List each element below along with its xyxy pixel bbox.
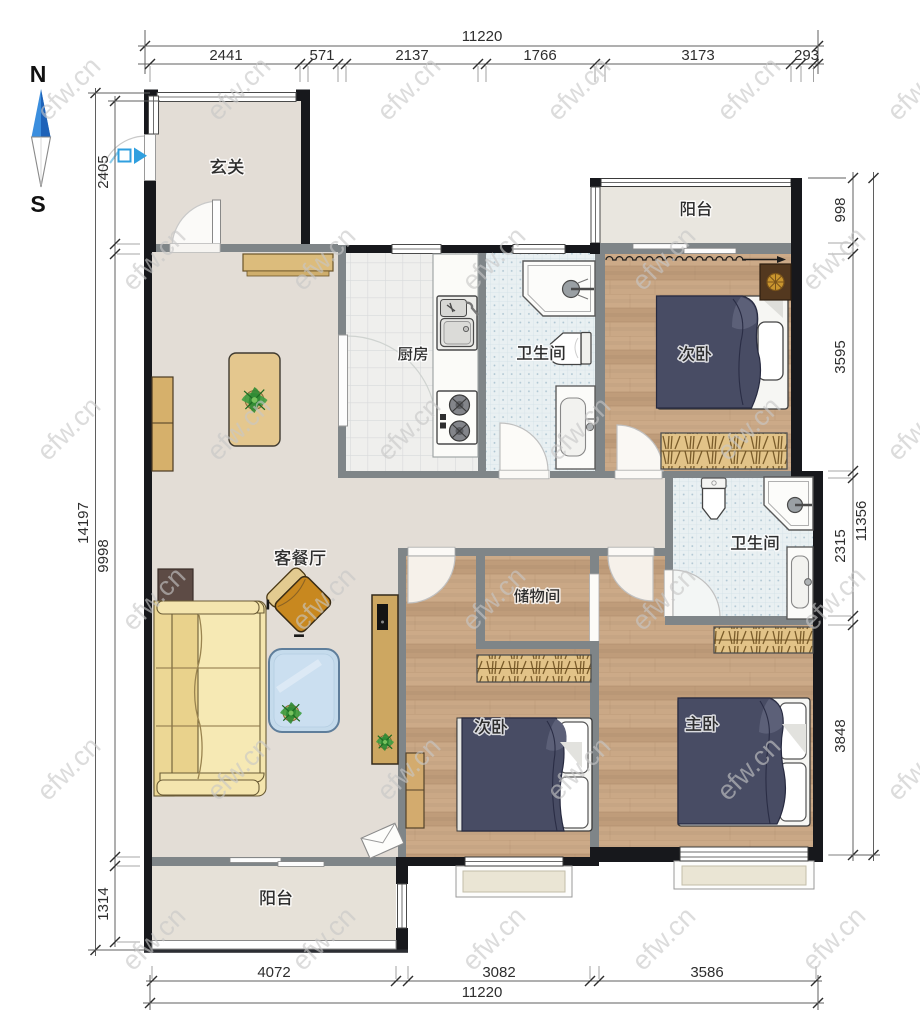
svg-text:571: 571 — [309, 47, 334, 64]
svg-text:293: 293 — [794, 47, 819, 64]
svg-text:3082: 3082 — [482, 964, 515, 981]
svg-text:11220: 11220 — [462, 28, 503, 45]
svg-text:1766: 1766 — [523, 47, 556, 64]
svg-text:2405: 2405 — [95, 155, 112, 188]
svg-text:3595: 3595 — [832, 340, 849, 373]
svg-text:14197: 14197 — [75, 502, 92, 544]
svg-text:3848: 3848 — [832, 719, 849, 752]
svg-text:S: S — [30, 191, 45, 217]
svg-text:2315: 2315 — [832, 529, 849, 562]
svg-text:1314: 1314 — [95, 887, 112, 920]
svg-text:4072: 4072 — [257, 964, 290, 981]
svg-text:11220: 11220 — [462, 984, 503, 1001]
svg-text:9998: 9998 — [95, 539, 112, 572]
svg-text:3586: 3586 — [690, 964, 723, 981]
svg-text:N: N — [30, 61, 47, 87]
svg-text:998: 998 — [832, 197, 849, 222]
svg-text:3173: 3173 — [681, 47, 714, 64]
svg-text:11356: 11356 — [853, 501, 870, 542]
svg-text:2441: 2441 — [209, 47, 242, 64]
